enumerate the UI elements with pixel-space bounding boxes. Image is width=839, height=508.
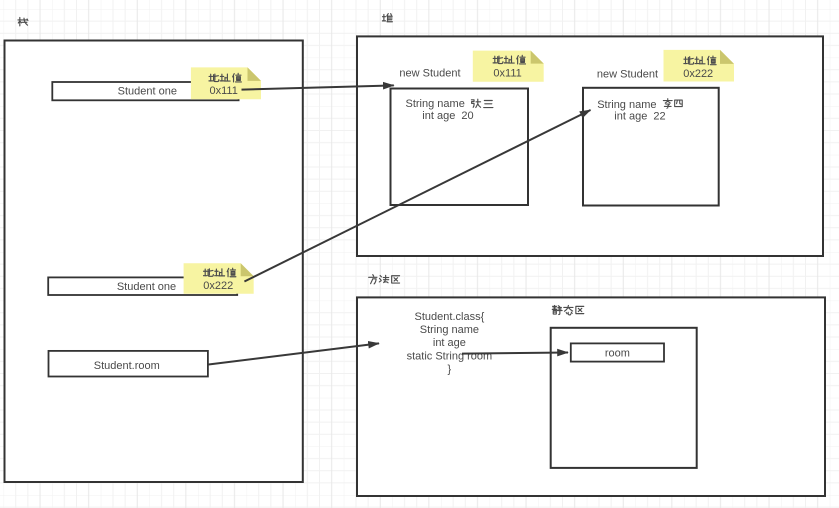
svg-text:0x222: 0x222 [203, 280, 233, 292]
svg-text:int age 20: int age 20 [422, 110, 473, 122]
svg-text:int age: int age [433, 337, 466, 349]
svg-text:int age 22: int age 22 [614, 111, 665, 123]
svg-text:Student one: Student one [117, 281, 176, 293]
svg-text:Student.class{: Student.class{ [415, 311, 485, 323]
svg-text:new Student: new Student [597, 68, 658, 80]
svg-text:String name: String name [420, 324, 479, 336]
svg-text:}: } [448, 363, 452, 375]
svg-text:0x111: 0x111 [210, 85, 238, 97]
svg-text:new Student: new Student [399, 68, 460, 80]
svg-text:room: room [605, 348, 630, 360]
svg-text:0x111: 0x111 [493, 67, 521, 79]
svg-text:static String room: static String room [407, 350, 493, 362]
svg-text:String name: String name [406, 98, 465, 110]
svg-text:0x222: 0x222 [683, 68, 713, 80]
svg-text:Student one: Student one [118, 86, 177, 98]
svg-text:Student.room: Student.room [94, 360, 160, 372]
svg-text:String name: String name [597, 99, 656, 111]
